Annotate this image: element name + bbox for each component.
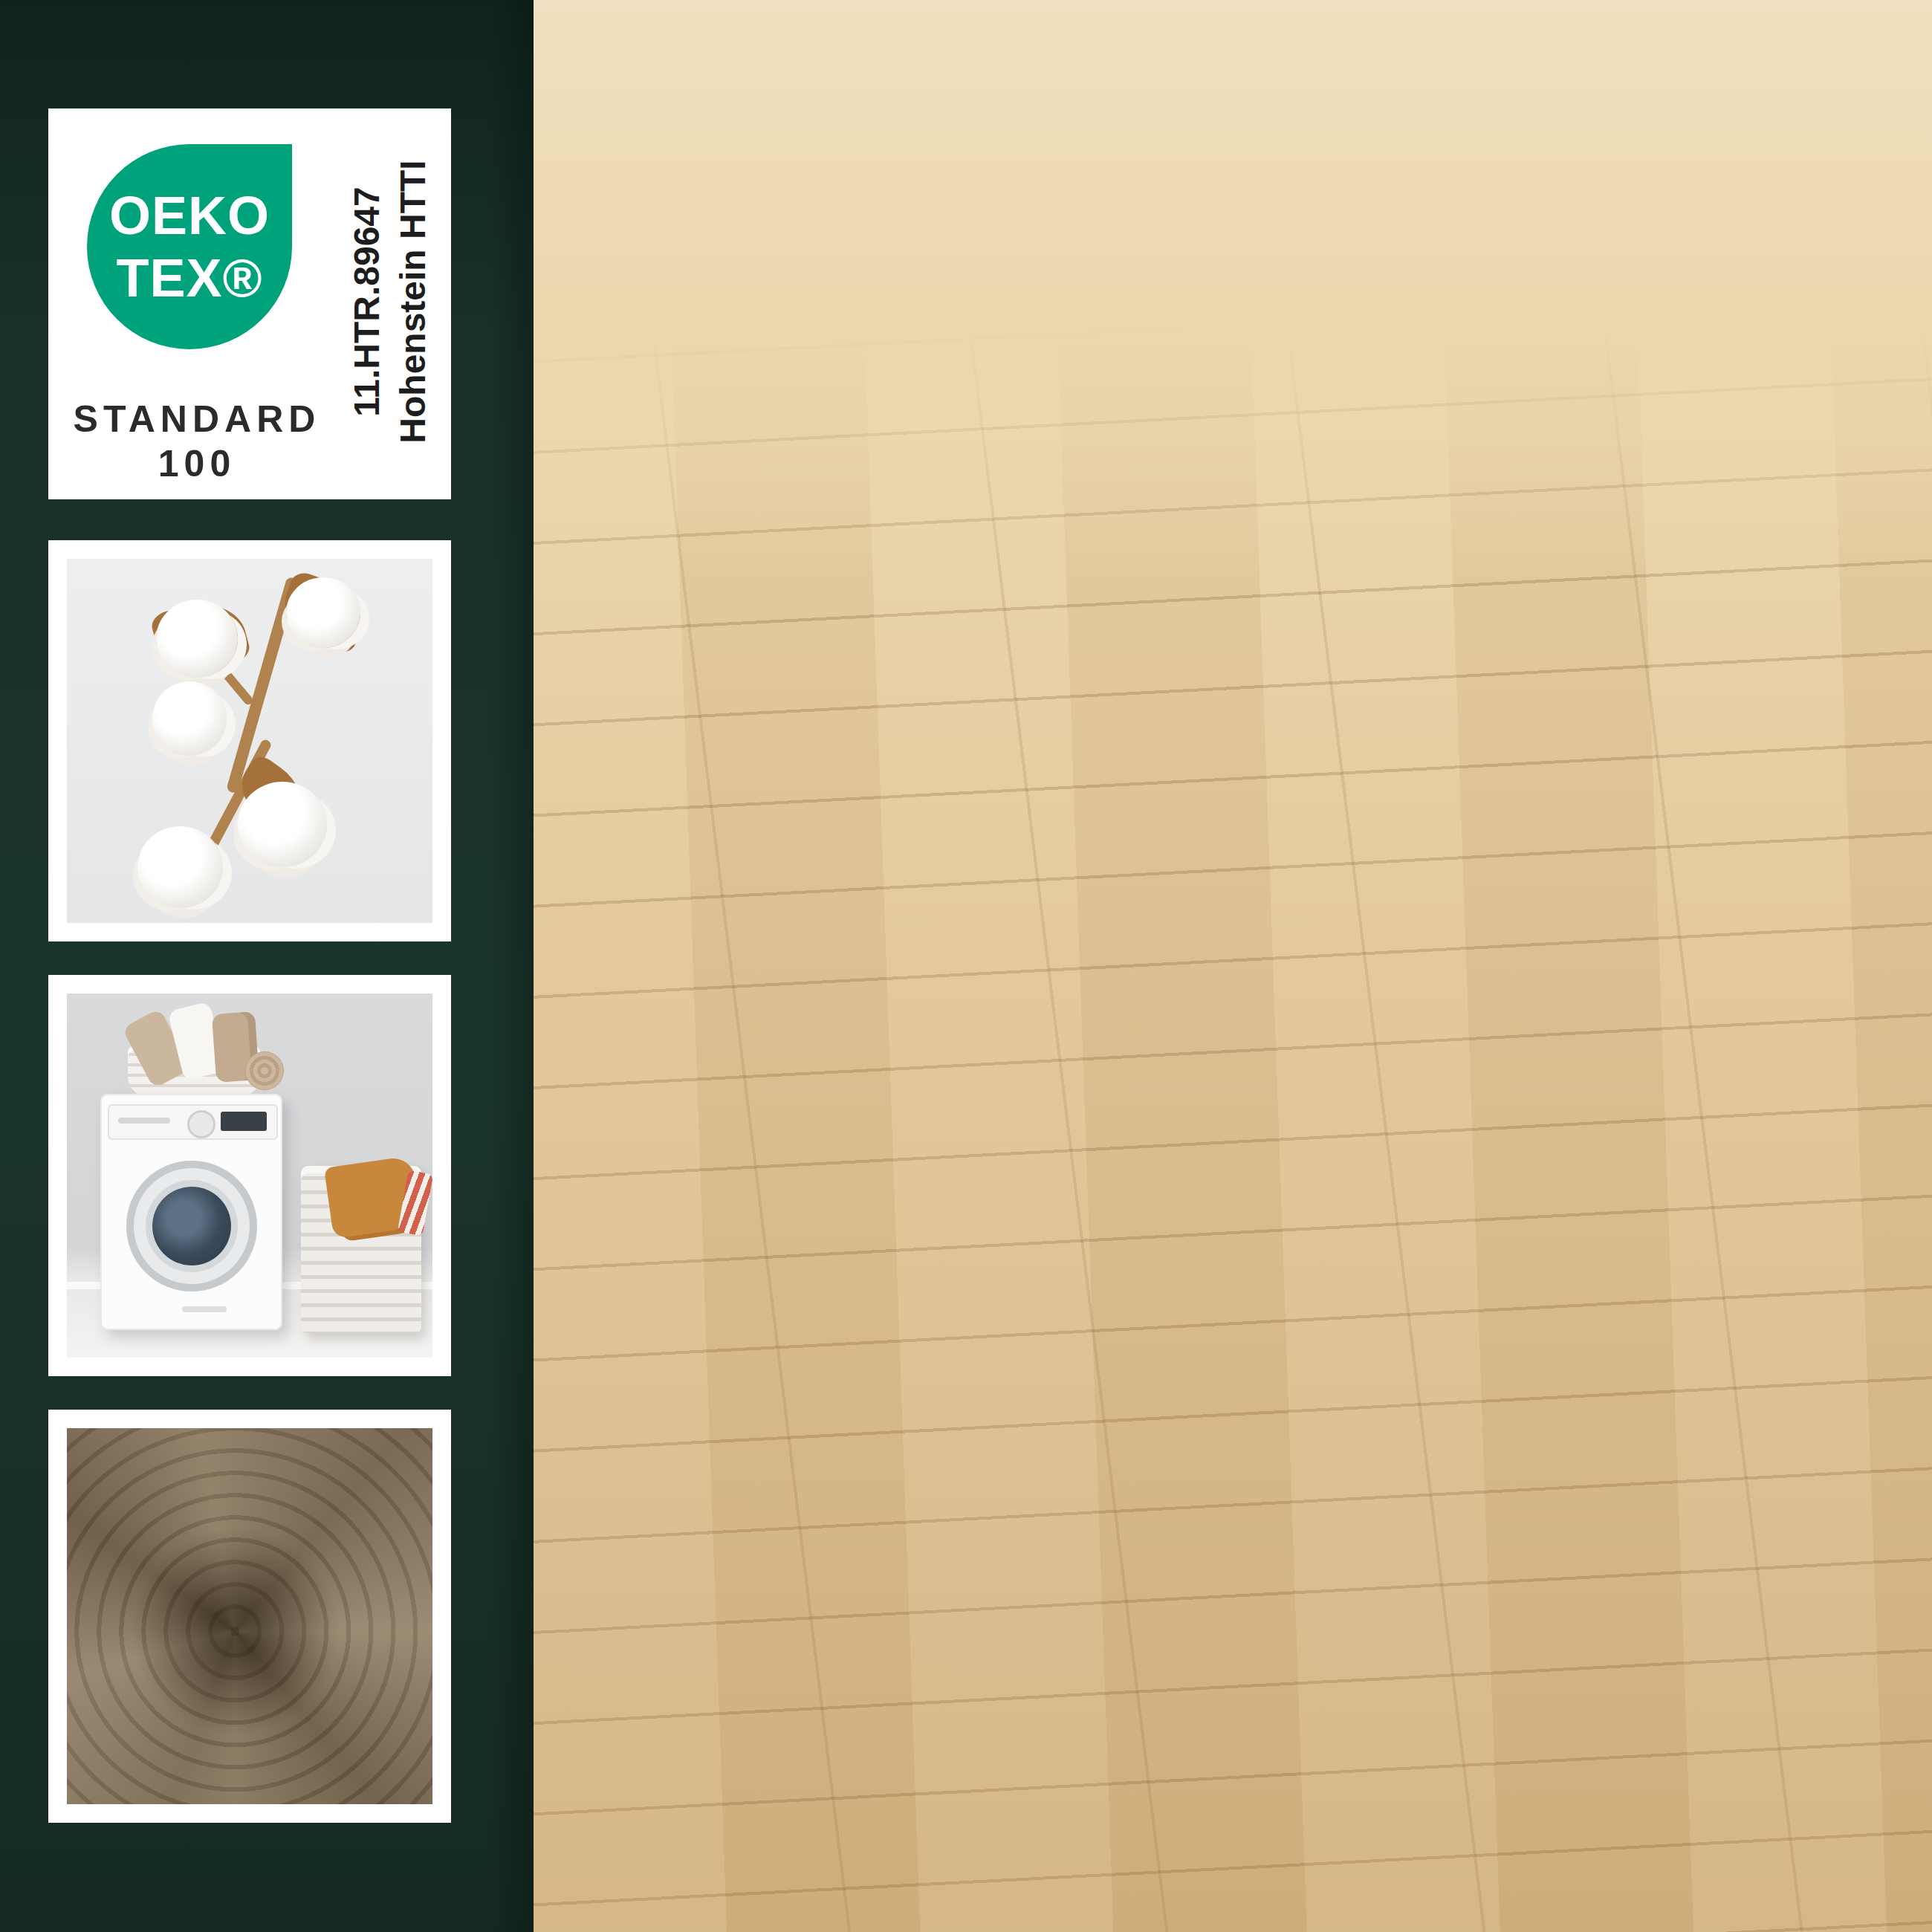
- certificate-number: 11.HTR.89647: [344, 123, 390, 480]
- sidebar-panel: OEKO TEX® STANDARD 100 11.HTR.89647 Hohe…: [0, 0, 534, 1932]
- cotton-boll: [238, 782, 327, 867]
- oeko-logo-word-bottom: TEX®: [116, 247, 262, 309]
- cotton-thumbnail-card: [48, 540, 451, 941]
- oeko-tex-logo-icon: OEKO TEX®: [87, 144, 292, 349]
- standard-number: 100: [48, 441, 346, 486]
- towel-swirl-photo: [67, 1428, 432, 1804]
- towel-thumbnail-card: [48, 1410, 451, 1823]
- standard-word: STANDARD: [48, 397, 346, 441]
- program-knob: [187, 1110, 215, 1138]
- certification-card: OEKO TEX® STANDARD 100 11.HTR.89647 Hohe…: [48, 108, 451, 499]
- cotton-boll: [286, 577, 360, 648]
- product-infographic: OEKO TEX® STANDARD 100 11.HTR.89647 Hohe…: [0, 0, 1932, 1932]
- certificate-id-block: 11.HTR.89647 Hohenstein HTTI: [344, 123, 436, 480]
- control-panel: [108, 1104, 278, 1140]
- laundry-thumbnail-card: [48, 975, 451, 1376]
- machine-drum: [152, 1187, 231, 1265]
- room-photo: [534, 0, 1932, 1932]
- cotton-boll: [137, 826, 223, 908]
- rolled-towel: [245, 1051, 284, 1090]
- service-flap: [182, 1306, 227, 1312]
- blurred-bathroom-scene: [534, 0, 1932, 580]
- washing-machine: [100, 1094, 282, 1330]
- washing-machine-photo: [67, 993, 432, 1358]
- standard-100-label: STANDARD 100: [48, 397, 346, 486]
- cotton-branch-photo: [67, 559, 432, 923]
- detergent-drawer: [118, 1118, 170, 1124]
- oeko-logo-word-top: OEKO: [109, 184, 270, 247]
- certificate-institute: Hohenstein HTTI: [390, 123, 436, 480]
- wood-cabinet: [534, 0, 868, 290]
- cotton-boll: [156, 600, 238, 678]
- machine-display: [221, 1112, 267, 1131]
- cotton-boll: [152, 681, 227, 756]
- machine-door: [126, 1161, 257, 1291]
